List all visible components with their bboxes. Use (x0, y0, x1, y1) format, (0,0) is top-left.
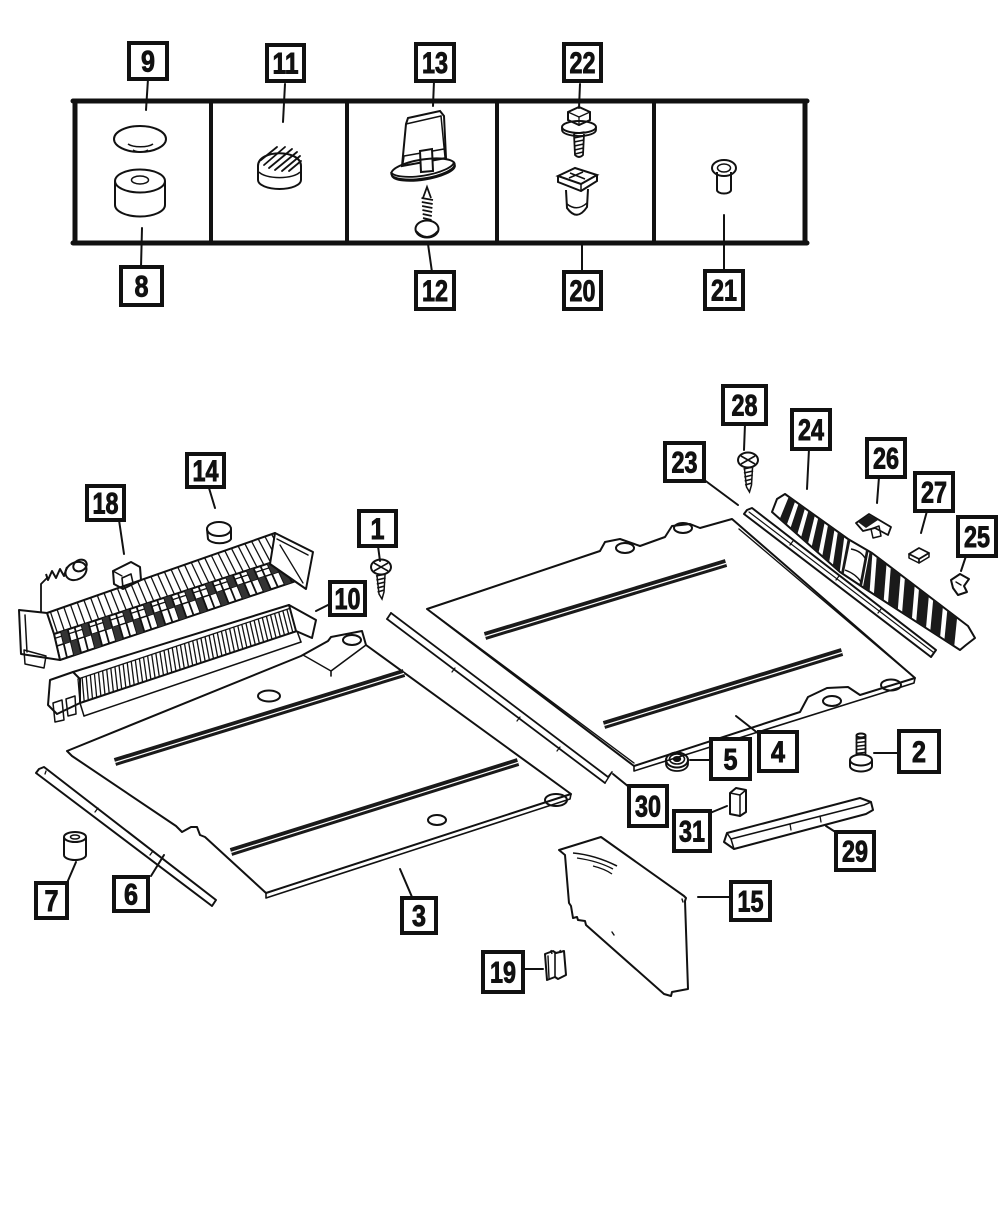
svg-text:26: 26 (873, 443, 899, 476)
svg-text:14: 14 (193, 455, 219, 488)
svg-text:3: 3 (412, 900, 426, 933)
svg-text:1: 1 (371, 513, 385, 546)
svg-text:4: 4 (771, 736, 785, 769)
svg-text:18: 18 (93, 488, 119, 521)
svg-text:7: 7 (45, 885, 59, 918)
svg-text:13: 13 (422, 47, 448, 80)
svg-text:6: 6 (124, 879, 138, 912)
svg-text:19: 19 (490, 957, 516, 990)
svg-text:12: 12 (422, 275, 448, 308)
svg-text:28: 28 (732, 390, 758, 423)
svg-text:27: 27 (921, 477, 947, 510)
svg-text:31: 31 (679, 816, 705, 849)
svg-text:25: 25 (964, 521, 990, 554)
svg-text:9: 9 (141, 46, 155, 79)
svg-text:10: 10 (335, 583, 361, 616)
svg-text:2: 2 (912, 736, 926, 769)
svg-text:22: 22 (570, 47, 596, 80)
svg-text:8: 8 (135, 271, 149, 304)
svg-text:21: 21 (711, 275, 737, 308)
svg-text:23: 23 (672, 447, 698, 480)
svg-text:20: 20 (570, 275, 596, 308)
svg-text:30: 30 (635, 791, 661, 824)
svg-text:11: 11 (273, 48, 299, 81)
svg-text:15: 15 (738, 886, 764, 919)
svg-text:24: 24 (798, 414, 824, 447)
svg-text:5: 5 (724, 744, 738, 777)
svg-text:29: 29 (842, 836, 868, 869)
